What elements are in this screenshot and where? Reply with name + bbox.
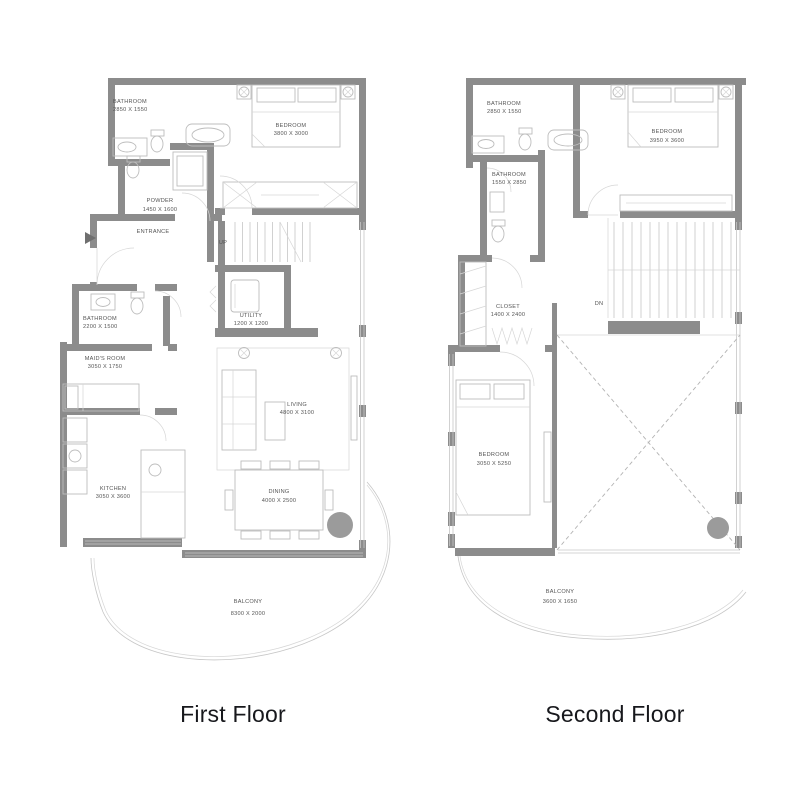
- column: [327, 512, 353, 538]
- first-floor-bed: [252, 85, 340, 147]
- floorplan-page: BATHROOM 2850 X 1550 BEDROOM 3800 X 3000…: [0, 0, 800, 800]
- room-label: BALCONY: [234, 599, 263, 605]
- room-dims: 8300 X 2000: [231, 611, 265, 617]
- second-floor-plan: BATHROOM 2850 X 1550 BEDROOM 3950 X 3600…: [448, 72, 758, 652]
- first-floor-bathroom-left-fixtures: [91, 292, 144, 314]
- room-label: BATHROOM: [113, 99, 147, 105]
- room-dims: 3050 X 1750: [88, 364, 122, 370]
- room-dims: 1450 X 1600: [143, 207, 177, 213]
- nightstand-lamp-icon: [611, 85, 625, 99]
- room-dims: 2200 X 1500: [83, 324, 117, 330]
- room-dims: 1550 X 2850: [492, 180, 526, 186]
- stair-direction-label: DN: [595, 301, 604, 307]
- ceiling-light-icon: [239, 348, 250, 359]
- second-floor-bed-bottom: [456, 380, 551, 515]
- room-dims: 3050 X 3600: [96, 494, 130, 500]
- room-label: BATHROOM: [487, 101, 521, 107]
- room-dims: 4000 X 2500: [262, 498, 296, 504]
- second-floor-stairs: [608, 218, 740, 318]
- room-label: BEDROOM: [652, 129, 683, 135]
- second-floor-bathroom-top-fixtures: [472, 128, 588, 153]
- room-label: DINING: [268, 489, 289, 495]
- room-label: KITCHEN: [100, 486, 126, 492]
- column: [707, 517, 729, 539]
- second-floor-windows: [450, 222, 741, 553]
- utility-machine: [210, 280, 259, 312]
- second-floor-balcony-outline: [458, 556, 746, 639]
- room-label: BEDROOM: [276, 123, 307, 129]
- room-dims: 3800 X 3000: [274, 131, 308, 137]
- room-dims: 1400 X 2400: [491, 312, 525, 318]
- room-label: MAID'S ROOM: [85, 356, 126, 362]
- first-floor-stairs: [235, 222, 310, 262]
- nightstand-lamp-icon: [341, 85, 355, 99]
- room-dims: 1200 X 1200: [234, 321, 268, 327]
- first-floor-plan: BATHROOM 2850 X 1550 BEDROOM 3800 X 3000…: [55, 72, 425, 672]
- room-label: BEDROOM: [479, 452, 510, 458]
- second-floor-title: Second Floor: [505, 701, 725, 728]
- room-dims: 3050 X 5250: [477, 461, 511, 467]
- room-label: CLOSET: [496, 304, 520, 310]
- room-label: BATHROOM: [492, 172, 526, 178]
- stair-direction-label: UP: [219, 240, 227, 246]
- first-floor-balcony-outline: [91, 482, 390, 660]
- room-dims: 2850 X 1550: [487, 109, 521, 115]
- room-label: LIVING: [287, 402, 307, 408]
- room-label: BALCONY: [546, 589, 575, 595]
- room-label: POWDER: [147, 198, 174, 204]
- first-floor-kitchen-fixtures: [63, 418, 185, 538]
- void-cross: [557, 335, 740, 550]
- second-floor-bed-top: [620, 85, 732, 211]
- maids-room-bed: [63, 384, 139, 411]
- room-label: UTILITY: [240, 313, 263, 319]
- room-label: BATHROOM: [83, 316, 117, 322]
- room-label: ENTRANCE: [137, 229, 170, 235]
- room-dims: 3600 X 1650: [543, 599, 577, 605]
- first-floor-powder-fixtures: [127, 152, 207, 190]
- room-dims: 3950 X 3600: [650, 138, 684, 144]
- second-floor-bathroom-mid-fixtures: [490, 192, 505, 242]
- nightstand-lamp-icon: [237, 85, 251, 99]
- ceiling-light-icon: [331, 348, 342, 359]
- first-floor-living-furniture: [217, 348, 357, 470]
- room-dims: 4800 X 3100: [280, 410, 314, 416]
- nightstand-lamp-icon: [719, 85, 733, 99]
- first-floor-title: First Floor: [123, 701, 343, 728]
- room-dims: 2850 X 1550: [113, 107, 147, 113]
